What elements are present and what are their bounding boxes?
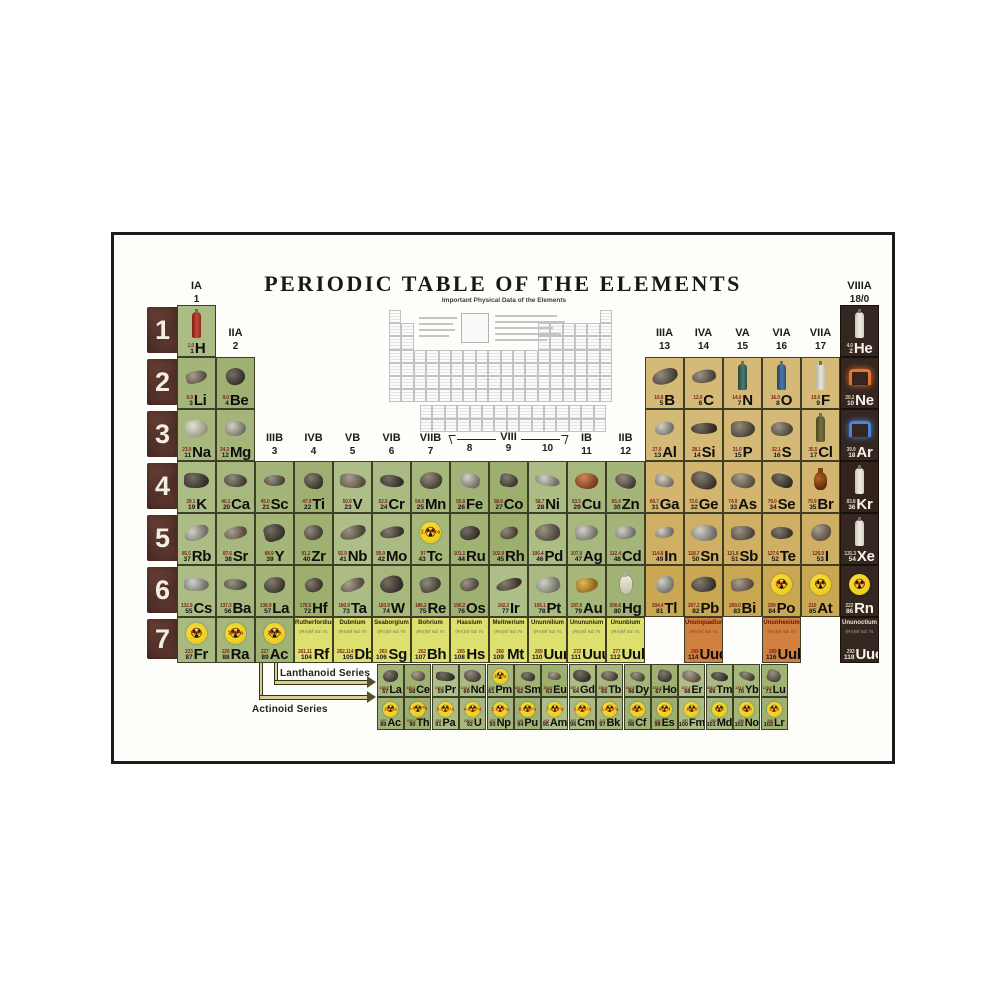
element-sample-photo bbox=[654, 421, 674, 436]
element-cell-Hg: 200.680Hg bbox=[606, 565, 645, 617]
inset-series-cell bbox=[432, 405, 444, 418]
element-label: 4.02He bbox=[842, 343, 877, 355]
element-symbol: Rh bbox=[505, 551, 524, 563]
element-symbol: N bbox=[742, 395, 753, 407]
element-fine-print: (Rn)5f 6d 7s bbox=[412, 629, 449, 634]
mass-number-stack: 186.275 bbox=[415, 604, 427, 616]
group-roman: IIA bbox=[211, 326, 260, 340]
group-roman: IIB bbox=[601, 431, 650, 445]
inset-cell bbox=[463, 389, 475, 402]
element-sample-photo bbox=[224, 366, 247, 387]
inset-cell bbox=[463, 376, 475, 389]
element-sample-photo bbox=[182, 522, 210, 543]
element-symbol: Db bbox=[354, 649, 372, 661]
element-sample-photo bbox=[418, 575, 442, 595]
element-photo bbox=[724, 568, 761, 601]
atomic-number: 7 bbox=[738, 401, 742, 408]
atomic-number: 24 bbox=[380, 505, 387, 512]
element-photo: ☢21.8 a bbox=[378, 700, 403, 718]
element-photo bbox=[217, 360, 254, 393]
inset-cell bbox=[587, 389, 599, 402]
element-photo bbox=[217, 568, 254, 601]
mass-number-stack: 140.158 bbox=[406, 686, 415, 696]
page-title: PERIODIC TABLE OF THE ELEMENTS bbox=[114, 271, 892, 297]
inset-cell bbox=[488, 376, 500, 389]
element-photo bbox=[217, 412, 254, 445]
element-photo bbox=[542, 667, 567, 685]
element-sample-photo bbox=[534, 574, 561, 595]
atomic-number: 70 bbox=[738, 690, 744, 696]
element-sample-photo bbox=[690, 524, 717, 542]
element-cell-Li: 6.93Li bbox=[177, 357, 216, 409]
element-symbol: Ho bbox=[662, 686, 676, 695]
element-label: 58.728Ni bbox=[530, 499, 565, 511]
element-photo bbox=[178, 412, 215, 445]
element-symbol: Ne bbox=[855, 395, 874, 407]
atomic-number: 114 bbox=[688, 655, 699, 662]
element-sample-photo bbox=[770, 526, 792, 539]
inset-cell bbox=[463, 363, 475, 376]
element-cell-Be: 9.04Be bbox=[216, 357, 255, 409]
mass-number-stack: 63.529 bbox=[572, 500, 581, 512]
element-symbol: Ag bbox=[583, 551, 602, 563]
element-label: 24395Am bbox=[543, 719, 566, 729]
element-sample-photo bbox=[769, 471, 794, 490]
mass-number-stack: 50.923 bbox=[343, 500, 352, 512]
element-label: 137.356Ba bbox=[218, 603, 253, 615]
element-label: 79.034Se bbox=[764, 499, 799, 511]
element-photo bbox=[178, 308, 215, 341]
mass-number-stack: 106.446 bbox=[532, 552, 544, 564]
element-label: 106.446Pd bbox=[530, 551, 565, 563]
mass-number-stack: 260103 bbox=[764, 719, 773, 729]
element-label: 127.652Te bbox=[764, 551, 799, 563]
atomic-number: 99 bbox=[655, 723, 661, 729]
element-sample-photo bbox=[534, 522, 561, 542]
half-life-text: 4.5·10⁹a bbox=[464, 706, 481, 711]
atomic-number: 35 bbox=[809, 505, 816, 512]
element-symbol: Li bbox=[194, 395, 207, 407]
element-cell-Dy: 162.566Dy bbox=[624, 664, 651, 697]
element-symbol: Zn bbox=[622, 499, 640, 511]
element-label: 35.517Cl bbox=[803, 447, 838, 459]
atomic-number: 73 bbox=[343, 609, 350, 616]
element-photo bbox=[802, 360, 839, 393]
element-cell-Re: 186.275Re bbox=[411, 565, 450, 617]
element-cell-Ne: 20.210Ne bbox=[840, 357, 879, 409]
element-photo bbox=[763, 360, 800, 393]
inset-series-cell bbox=[569, 419, 581, 432]
element-cell-Eu: 152.063Eu bbox=[541, 664, 568, 697]
mass-number-stack: 258101 bbox=[707, 719, 716, 729]
inset-cell bbox=[575, 376, 587, 389]
element-label: 1.01H bbox=[179, 343, 214, 355]
element-cell-Co: 58.927Co bbox=[489, 461, 528, 513]
half-life-text: 52 d bbox=[715, 706, 724, 711]
half-life-text: 1600 a bbox=[228, 630, 243, 636]
atomic-number: 108 bbox=[454, 655, 465, 662]
inset-cell bbox=[439, 389, 451, 402]
element-symbol: Cr bbox=[388, 499, 404, 511]
mass-number-stack: 132.955 bbox=[181, 604, 193, 616]
element-photo: ☢7.4·10³a bbox=[542, 700, 567, 718]
atomic-number: 30 bbox=[613, 505, 620, 512]
mass-number-stack: 22286 bbox=[845, 604, 853, 616]
element-name: Ununbium bbox=[607, 620, 644, 626]
element-sample-photo bbox=[303, 472, 323, 489]
inset-cell bbox=[426, 389, 438, 402]
element-symbol: F bbox=[821, 395, 830, 407]
mass-number-stack: 114.849 bbox=[652, 552, 663, 564]
inset-series-cell bbox=[445, 419, 457, 432]
element-symbol: Fm bbox=[689, 719, 705, 728]
mass-number-stack: 65.430 bbox=[612, 500, 621, 512]
element-label: 102.945Rh bbox=[491, 551, 526, 563]
element-label: 24494Pu bbox=[516, 719, 539, 729]
element-label: 22789Ac bbox=[379, 719, 402, 729]
element-symbol: Ga bbox=[660, 499, 679, 511]
element-sample-photo bbox=[650, 366, 679, 386]
radioactive-icon: ☢52 d bbox=[712, 702, 727, 717]
gas-discharge-icon bbox=[849, 421, 871, 437]
mass-number-stack: 277112 bbox=[610, 650, 621, 662]
element-photo bbox=[373, 568, 410, 601]
atomic-number: 21 bbox=[262, 505, 269, 512]
inset-cell bbox=[600, 376, 612, 389]
element-cell-Bi: 209.083Bi bbox=[723, 565, 762, 617]
element-sample-photo bbox=[224, 579, 247, 591]
atomic-number: 77 bbox=[502, 609, 509, 616]
element-label: 16.08O bbox=[764, 395, 799, 407]
element-label: 87.638Sr bbox=[218, 551, 253, 563]
inset-series-cell bbox=[532, 405, 544, 418]
element-cell-Ra: ☢1600 a22688Ra bbox=[216, 617, 255, 663]
element-sample-photo bbox=[184, 473, 209, 488]
element-photo: ☢52 d bbox=[707, 700, 732, 718]
element-photo bbox=[373, 464, 410, 497]
atomic-number: 83 bbox=[733, 609, 740, 616]
atomic-number: 59 bbox=[438, 690, 444, 696]
radioactive-icon: ☢1.6·10⁷a bbox=[575, 702, 590, 717]
inset-cell bbox=[451, 350, 463, 363]
element-label: 40.120Ca bbox=[218, 499, 253, 511]
element-cell-W: 183.974W bbox=[372, 565, 411, 617]
period-label-7: 7 bbox=[147, 619, 178, 659]
inset-cell bbox=[600, 389, 612, 402]
element-symbol: No bbox=[745, 719, 759, 728]
mass-number-stack: 263106 bbox=[376, 650, 387, 662]
element-sample-photo bbox=[730, 525, 755, 540]
inset-cell bbox=[550, 336, 562, 349]
radioactive-icon: ☢7.4·10³a bbox=[547, 702, 562, 717]
element-sample-photo bbox=[572, 669, 592, 684]
bracket-line: VIII bbox=[450, 431, 567, 443]
element-label: 157.364Gd bbox=[571, 686, 594, 696]
element-photo: ☢3.6 h bbox=[762, 700, 787, 718]
mass-number-stack: 121.851 bbox=[727, 552, 739, 564]
element-symbol: Ir bbox=[510, 603, 519, 615]
element-symbol: Ac bbox=[387, 719, 400, 728]
element-cell-Fe: 55.826Fe bbox=[450, 461, 489, 513]
inset-cell bbox=[550, 350, 562, 363]
bracket-line-right bbox=[521, 439, 560, 440]
element-symbol: Zr bbox=[311, 551, 325, 563]
element-photo bbox=[802, 464, 839, 497]
element-cell-P: 31.015P bbox=[723, 409, 762, 461]
element-sample-photo bbox=[383, 670, 399, 683]
inset-cell bbox=[587, 376, 599, 389]
atomic-number: 18 bbox=[848, 453, 855, 460]
element-symbol: Ar bbox=[856, 447, 872, 459]
half-life-text: 17.7 a bbox=[494, 673, 507, 678]
element-symbol: Ce bbox=[416, 686, 429, 695]
element-cell-Al: 27.013Al bbox=[645, 409, 684, 461]
element-symbol: Ta bbox=[351, 603, 367, 615]
element-sample-photo bbox=[499, 525, 519, 540]
element-symbol: Md bbox=[717, 719, 732, 728]
inset-cell bbox=[439, 363, 451, 376]
mass-number-stack: 25299 bbox=[655, 719, 661, 729]
group-number: 7 bbox=[406, 445, 455, 458]
element-symbol: Rb bbox=[192, 551, 211, 563]
group-header-IIA: IIA2 bbox=[211, 326, 260, 353]
inset-cell bbox=[600, 310, 612, 323]
element-photo bbox=[685, 568, 722, 601]
element-cell-Te: 127.652Te bbox=[762, 513, 801, 565]
element-photo bbox=[646, 412, 683, 445]
gas-cylinder-icon bbox=[855, 520, 864, 546]
element-cell-Pm: ☢17.7 a14561Pm bbox=[487, 664, 514, 697]
element-sample-photo bbox=[574, 524, 599, 542]
inset-series-cell bbox=[581, 419, 593, 432]
element-photo bbox=[724, 412, 761, 445]
inset-cell bbox=[600, 323, 612, 336]
mass-number-stack: 14.07 bbox=[732, 396, 741, 408]
mass-number-stack: 164.967 bbox=[652, 686, 661, 696]
element-name: Ununhexium bbox=[763, 620, 800, 626]
element-photo: ☢8.3 h bbox=[802, 568, 839, 601]
element-sample-photo bbox=[730, 420, 755, 437]
element-symbol: Cm bbox=[577, 719, 594, 728]
element-sample-photo bbox=[548, 671, 562, 681]
element-photo: ☢1.4·10³a bbox=[597, 700, 622, 718]
inset-series-cell bbox=[482, 405, 494, 418]
inset-cell bbox=[426, 350, 438, 363]
inset-cell bbox=[451, 389, 463, 402]
inset-series-cell bbox=[544, 419, 556, 432]
element-label: 144.260Nd bbox=[461, 686, 484, 696]
group-roman: VIII bbox=[496, 431, 521, 443]
element-symbol: Na bbox=[192, 447, 211, 459]
group-header-IIB: IIB12 bbox=[601, 431, 650, 458]
mass-number-stack: 58.728 bbox=[535, 500, 544, 512]
mass-number-stack: 16.08 bbox=[771, 396, 780, 408]
mass-number-stack: 79.034 bbox=[768, 500, 777, 512]
element-label: 24797Bk bbox=[598, 719, 621, 729]
element-symbol: Mg bbox=[230, 447, 251, 459]
mass-number-stack: 4.02 bbox=[847, 344, 853, 356]
mass-number-stack: 24395 bbox=[543, 719, 549, 729]
radioactive-icon: ☢17.7 a bbox=[493, 669, 508, 684]
atomic-number: 118 bbox=[844, 655, 855, 662]
element-cell-Ru: 101.144Ru bbox=[450, 513, 489, 565]
element-sample-photo bbox=[378, 573, 405, 596]
atomic-number: 44 bbox=[458, 557, 465, 564]
mass-number-stack: 112.448 bbox=[610, 552, 621, 564]
element-cell-C: 12.06C bbox=[684, 357, 723, 409]
element-cell-Tc: ☢2.6·10⁶a9743Tc bbox=[411, 513, 450, 565]
atomic-number: 89 bbox=[380, 723, 386, 729]
element-sample-photo bbox=[379, 473, 404, 487]
element-symbol: Sg bbox=[388, 649, 407, 661]
element-label: 72.632Ge bbox=[686, 499, 721, 511]
element-sample-photo bbox=[338, 523, 366, 542]
atomic-number: 63 bbox=[546, 690, 552, 696]
group-number: 12 bbox=[601, 445, 650, 458]
element-photo bbox=[646, 568, 683, 601]
element-symbol: Lr bbox=[774, 719, 784, 728]
element-label: 85.537Rb bbox=[179, 551, 214, 563]
element-photo bbox=[724, 516, 761, 549]
element-photo bbox=[490, 568, 527, 601]
element-label: 131.354Xe bbox=[842, 551, 877, 563]
atomic-number: 68 bbox=[684, 690, 690, 696]
element-symbol: Tc bbox=[427, 551, 443, 563]
mass-number-stack: 52.024 bbox=[378, 500, 387, 512]
element-cell-Hs: Hassium(Rn)5f 6d 7s265108Hs bbox=[450, 617, 489, 663]
element-label: 50.923V bbox=[335, 499, 370, 511]
element-symbol: Pd bbox=[544, 551, 563, 563]
group-number: 17 bbox=[796, 340, 845, 353]
element-cell-Uuo: Ununoctium(Rn)5f 6d 7s293118Uuo bbox=[840, 617, 879, 663]
atomic-number: 8 bbox=[776, 401, 780, 408]
element-label: 232.090Th bbox=[406, 719, 429, 729]
element-label: 22688Ra bbox=[218, 649, 253, 661]
mass-number-stack: 265108 bbox=[454, 650, 465, 662]
inset-cell bbox=[538, 350, 550, 363]
element-sample-photo bbox=[262, 522, 287, 544]
element-photo bbox=[178, 464, 215, 497]
element-symbol: In bbox=[664, 551, 677, 563]
inset-cell bbox=[414, 389, 426, 402]
atomic-number: 54 bbox=[849, 557, 856, 564]
half-life-text: 21.8 a bbox=[384, 706, 397, 711]
actinoid-arrowhead-icon bbox=[367, 691, 376, 703]
inset-cell bbox=[389, 323, 401, 336]
half-life-text: 22 m bbox=[191, 630, 202, 636]
inset-cell bbox=[476, 350, 488, 363]
inset-cell bbox=[389, 350, 401, 363]
mass-number-stack: 19.09 bbox=[811, 396, 820, 408]
mass-number-stack: 167.368 bbox=[681, 686, 690, 696]
mass-number-stack: 131.354 bbox=[844, 552, 856, 564]
inset-series-cell bbox=[519, 405, 531, 418]
atomic-number: 14 bbox=[693, 453, 700, 460]
element-label: 186.275Re bbox=[413, 603, 448, 615]
inset-cell bbox=[525, 350, 537, 363]
mass-number-stack: 22688 bbox=[222, 650, 230, 662]
element-label: 257100Fm bbox=[680, 719, 703, 729]
inset-cell bbox=[451, 363, 463, 376]
element-photo bbox=[334, 516, 371, 549]
element-symbol: Fe bbox=[466, 499, 483, 511]
element-symbol: Sc bbox=[271, 499, 289, 511]
mass-number-stack: 138.957 bbox=[260, 604, 272, 616]
element-cell-Md: ☢52 d258101Md bbox=[706, 697, 733, 730]
mass-number-stack: 261.11104 bbox=[298, 650, 312, 662]
element-cell-Mg: 24.312Mg bbox=[216, 409, 255, 461]
mass-number-stack: 238.092 bbox=[464, 719, 473, 729]
inset-cell bbox=[513, 376, 525, 389]
atomic-number: 56 bbox=[224, 609, 231, 616]
inset-cell bbox=[501, 350, 513, 363]
element-cell-Ba: 137.356Ba bbox=[216, 565, 255, 617]
radioactive-icon: ☢4.5·10⁹a bbox=[465, 702, 480, 717]
period-label-2: 2 bbox=[147, 359, 178, 405]
element-label: 54.925Mn bbox=[413, 499, 448, 511]
inset-cell bbox=[600, 336, 612, 349]
element-cell-Cl: 35.517Cl bbox=[801, 409, 840, 461]
mass-number-stack: 87.638 bbox=[223, 552, 232, 564]
atomic-number: 90 bbox=[409, 723, 415, 729]
element-label: 262107Bh bbox=[413, 649, 448, 661]
element-symbol: Hf bbox=[312, 603, 327, 615]
element-cell-Na: 23.011Na bbox=[177, 409, 216, 461]
element-label: 209.083Bi bbox=[725, 603, 760, 615]
atomic-number: 38 bbox=[225, 557, 232, 564]
element-label: 266109Mt bbox=[491, 649, 526, 661]
inset-cell bbox=[575, 336, 587, 349]
element-sample-photo bbox=[689, 469, 718, 492]
element-photo bbox=[802, 412, 839, 445]
element-photo bbox=[412, 568, 449, 601]
mass-number-stack: 173.070 bbox=[735, 686, 744, 696]
element-photo bbox=[841, 516, 878, 549]
group-roman: VIIIA bbox=[835, 279, 884, 293]
atomic-number: 106 bbox=[376, 655, 387, 662]
mass-number-stack: 22789 bbox=[380, 719, 386, 729]
element-symbol: Os bbox=[466, 603, 485, 615]
atomic-number: 53 bbox=[817, 557, 824, 564]
element-photo: ☢17.7 a bbox=[488, 667, 513, 685]
half-life-text: 2.6·10⁶a bbox=[421, 529, 440, 535]
inset-cell bbox=[575, 363, 587, 376]
element-symbol: C bbox=[703, 395, 714, 407]
atomic-number: 102 bbox=[735, 723, 744, 729]
element-label: 107.947Ag bbox=[569, 551, 604, 563]
element-cell-Xe: 131.354Xe bbox=[840, 513, 879, 565]
element-cell-Br: 79.935Br bbox=[801, 461, 840, 513]
element-label: 140.959Pr bbox=[434, 686, 457, 696]
element-photo bbox=[178, 360, 215, 393]
half-life-text: 2.1·10⁶a bbox=[491, 706, 508, 711]
inset-legend-line bbox=[419, 329, 455, 331]
element-photo bbox=[451, 464, 488, 497]
element-cell-Mn: 54.925Mn bbox=[411, 461, 450, 513]
element-photo bbox=[685, 464, 722, 497]
atomic-number: 84 bbox=[768, 609, 775, 616]
mass-number-stack: 118.750 bbox=[688, 552, 699, 564]
period-label-4: 4 bbox=[147, 463, 178, 509]
atomic-number: 57 bbox=[264, 609, 271, 616]
inset-cell bbox=[389, 389, 401, 402]
element-label: 47.922Ti bbox=[296, 499, 331, 511]
element-symbol: Cf bbox=[635, 719, 646, 728]
element-label: 63.529Cu bbox=[569, 499, 604, 511]
mass-number-stack: 262107 bbox=[415, 650, 426, 662]
element-label: 24796Cm bbox=[571, 719, 594, 729]
atomic-number: 94 bbox=[517, 723, 523, 729]
